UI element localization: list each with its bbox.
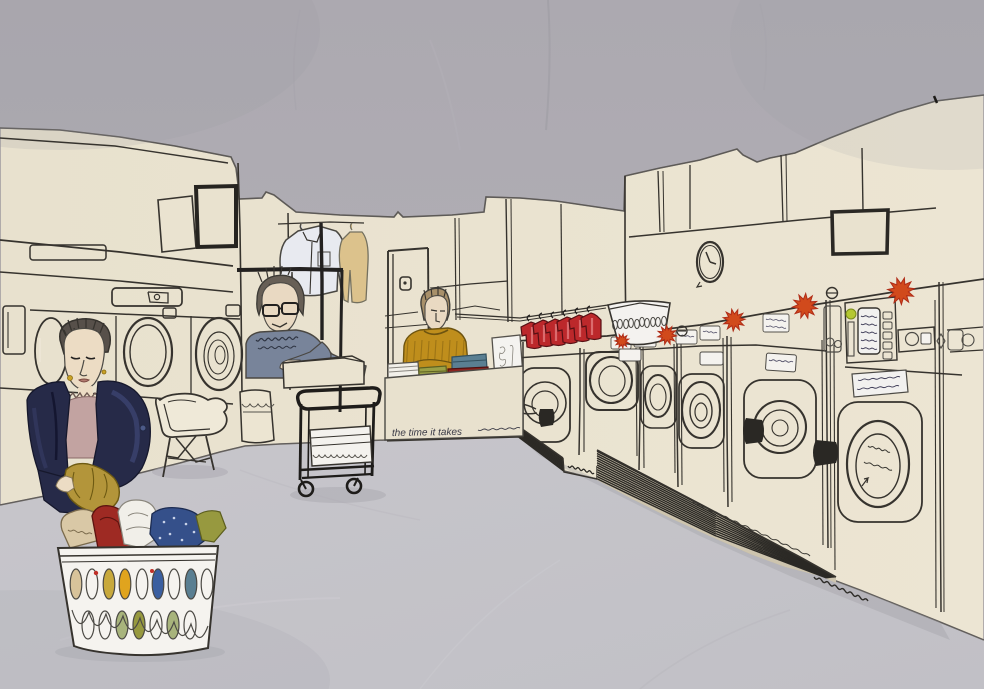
svg-text:the time it takes: the time it takes <box>392 427 462 439</box>
